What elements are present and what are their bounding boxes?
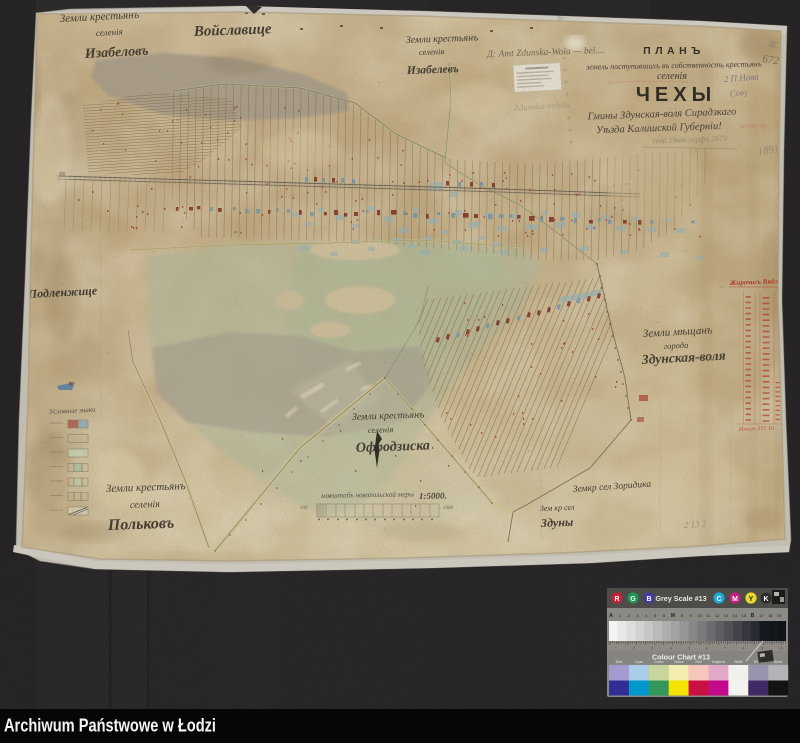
svg-text:B: B xyxy=(751,613,755,619)
svg-text:17: 17 xyxy=(759,613,764,618)
svg-text:1: 1 xyxy=(615,647,617,651)
svg-text:B: B xyxy=(646,596,651,603)
svg-text:Red: Red xyxy=(695,660,701,664)
svg-text:C: C xyxy=(716,596,721,603)
svg-text:15: 15 xyxy=(742,613,747,618)
svg-text:3: 3 xyxy=(651,647,653,651)
svg-text:Yellow: Yellow xyxy=(674,660,684,664)
svg-text:6: 6 xyxy=(706,647,708,651)
svg-text:Blue: Blue xyxy=(616,660,623,664)
svg-text:K: K xyxy=(763,596,768,603)
svg-text:7: 7 xyxy=(724,647,726,651)
svg-text:4: 4 xyxy=(670,647,672,651)
svg-text:Archiwum Państwowe w Łodzi: Archiwum Państwowe w Łodzi xyxy=(4,715,216,736)
svg-text:10: 10 xyxy=(697,613,702,618)
svg-text:10: 10 xyxy=(779,647,783,651)
svg-text:Grey Scale #13: Grey Scale #13 xyxy=(655,594,706,603)
svg-text:G: G xyxy=(630,596,636,603)
svg-text:Black: Black xyxy=(774,660,783,664)
svg-text:5: 5 xyxy=(688,647,690,651)
svg-text:Magenta: Magenta xyxy=(712,660,725,664)
svg-text:8: 8 xyxy=(742,647,744,651)
svg-text:Green: Green xyxy=(654,660,664,664)
svg-text:12: 12 xyxy=(715,613,720,618)
svg-text:M: M xyxy=(732,596,738,603)
svg-text:18: 18 xyxy=(768,613,773,618)
svg-text:White: White xyxy=(734,660,743,664)
svg-text:9: 9 xyxy=(761,647,763,651)
svg-text:Cyan: Cyan xyxy=(635,660,643,664)
svg-text:14: 14 xyxy=(733,613,738,618)
svg-text:M: M xyxy=(671,613,675,619)
svg-text:R: R xyxy=(614,596,619,603)
svg-text:Y: Y xyxy=(749,596,754,603)
svg-text:2: 2 xyxy=(633,647,635,651)
svg-text:19: 19 xyxy=(777,613,782,618)
svg-text:13: 13 xyxy=(724,613,729,618)
svg-text:A: A xyxy=(609,613,613,619)
